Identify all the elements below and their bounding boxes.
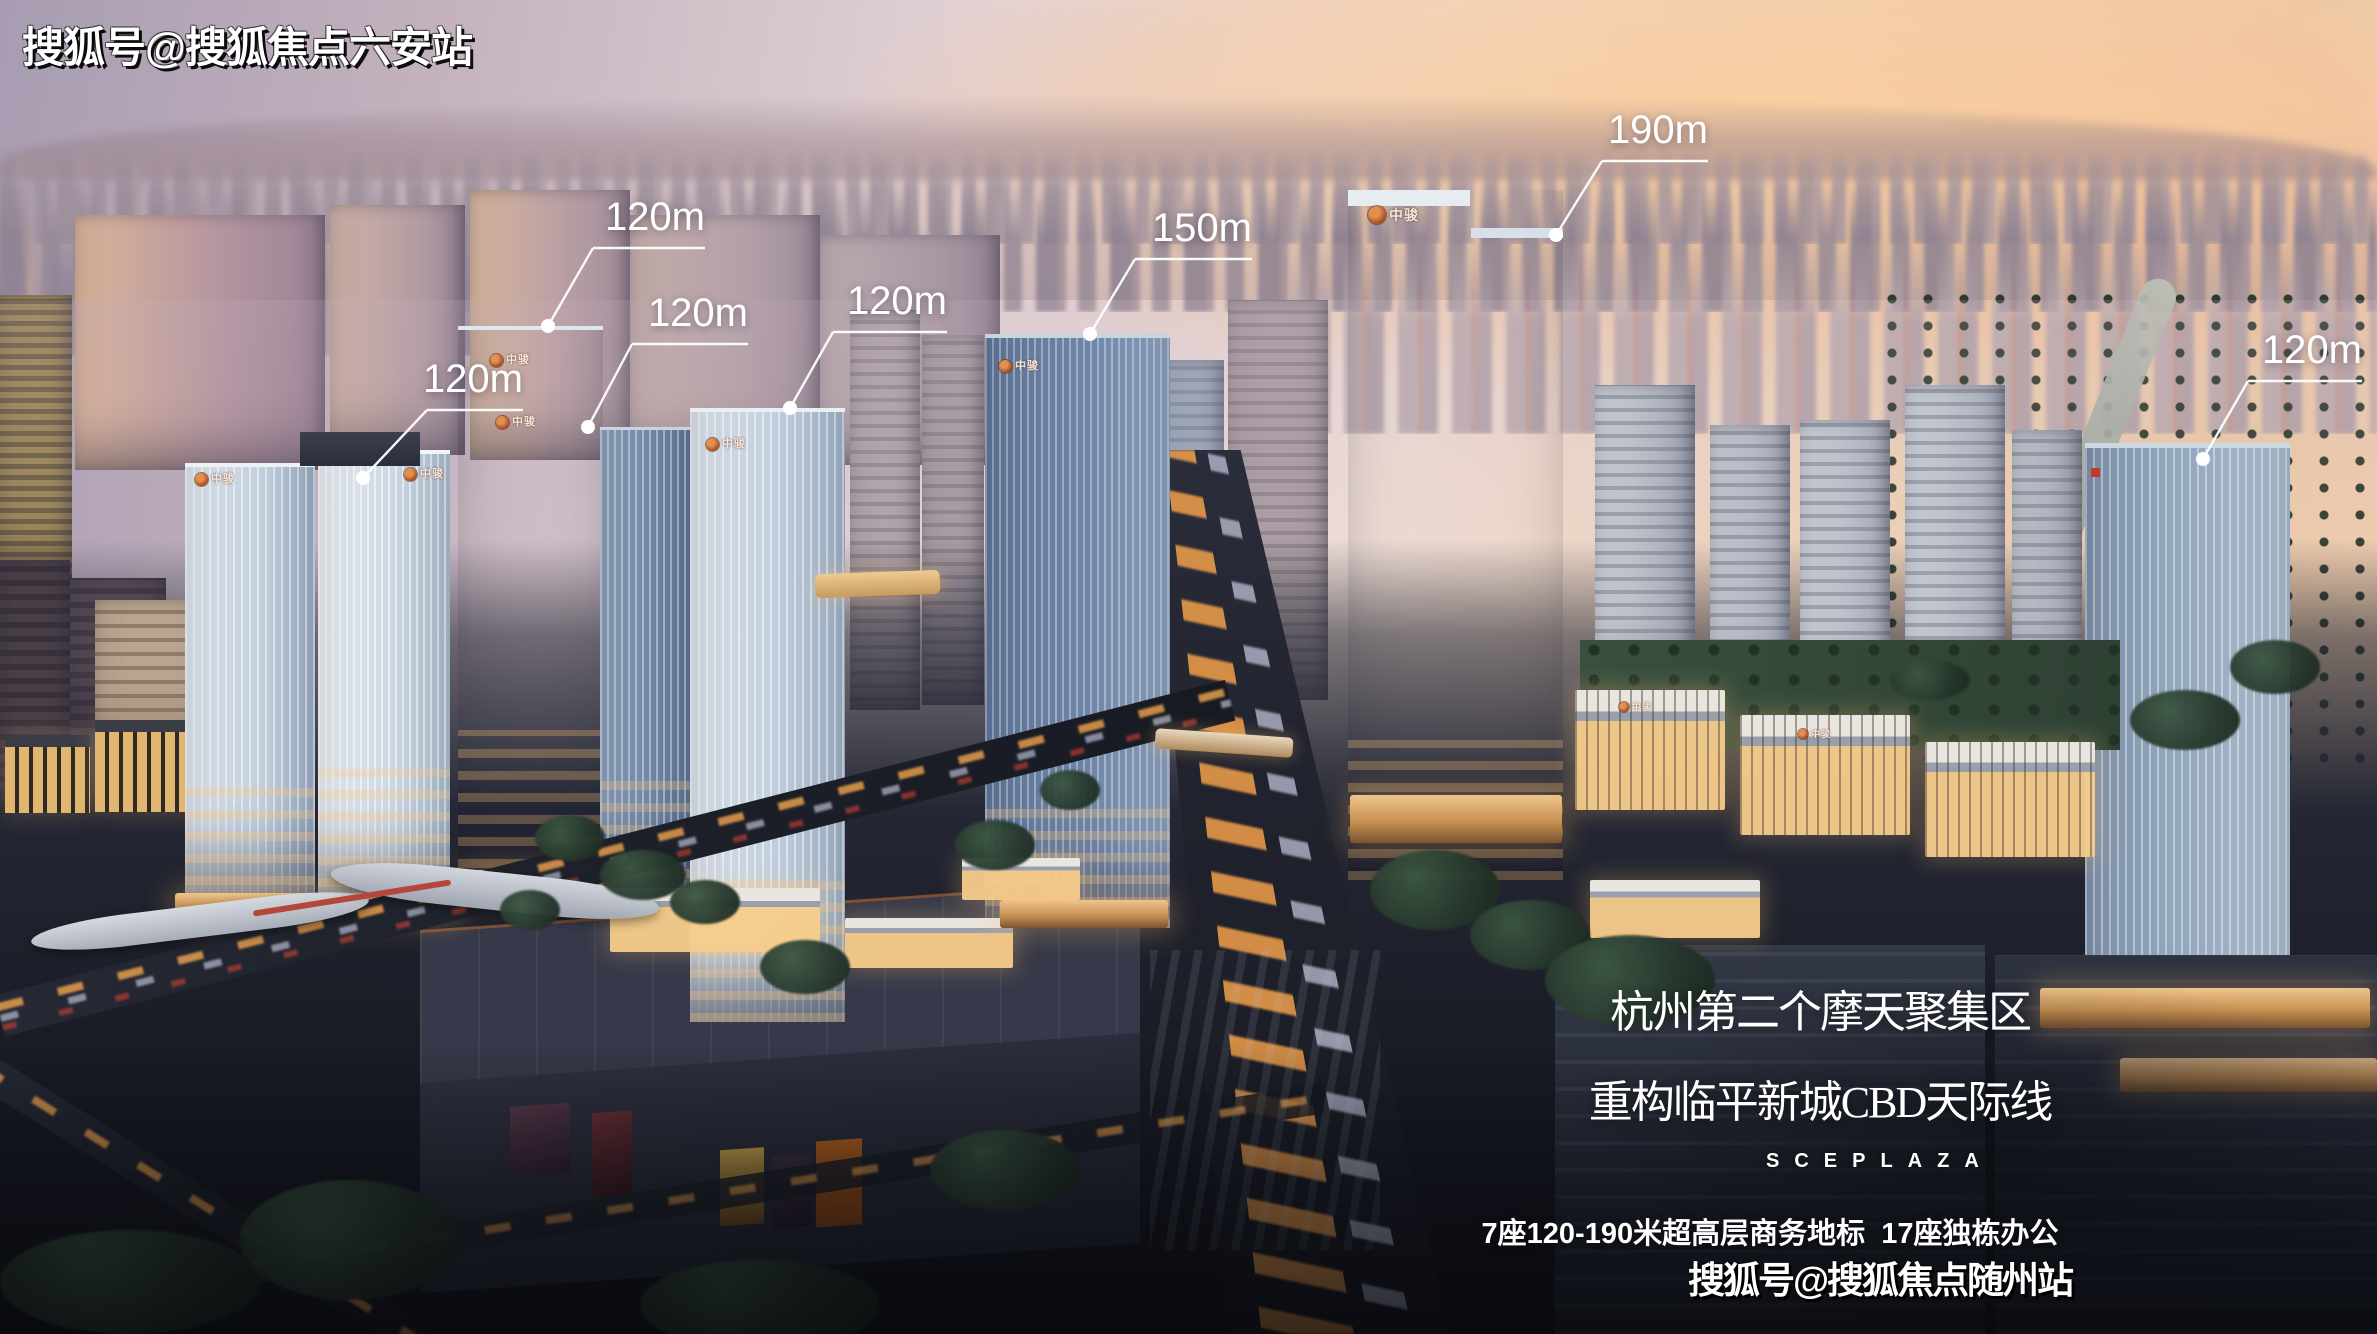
tree — [535, 815, 605, 861]
gear-icon — [999, 360, 1012, 373]
plaza-retail — [845, 918, 1013, 968]
gear-icon — [195, 473, 208, 486]
tower-120m-a: 中骏 — [185, 463, 315, 907]
podium-glow — [1000, 900, 1168, 928]
developer-logo-text: 中骏 — [211, 474, 235, 485]
tree — [1040, 770, 1100, 810]
developer-logo-text: 中骏 — [1811, 730, 1831, 739]
tree — [670, 880, 740, 924]
tree — [2230, 640, 2320, 694]
headline-stats: 7座120-190米超高层商务地标 17座独栋办公 — [1450, 1210, 2090, 1252]
watermark-top-left: 搜狐号@搜狐焦点六安站 — [22, 14, 472, 75]
cityscape-render: 中骏 中骏 中骏 中骏 中骏 中骏 中骏 中骏 中骏 — [0, 0, 2377, 1334]
developer-logo: 中骏 — [999, 360, 1039, 373]
developer-logo: 中骏 — [496, 416, 536, 429]
mall-entrance-canopy — [1590, 880, 1760, 938]
gear-icon — [1798, 729, 1808, 739]
developer-logo: 中骏 — [404, 468, 444, 481]
retail-street-box: 中骏 — [1740, 715, 1910, 835]
developer-logo: 中骏 — [706, 438, 746, 451]
tower-right-tier — [1471, 228, 1563, 238]
developer-logo-text: 中骏 — [1015, 361, 1039, 372]
rooftop-mechanical — [300, 432, 420, 466]
headline-line2: 重构临平新城CBD天际线 — [1545, 1066, 2095, 1130]
height-label-120m: 120m — [423, 357, 523, 402]
headline-line1: 杭州第二个摩天聚集区 — [1560, 976, 2080, 1040]
tower-120m-1: 中骏 中骏 — [458, 326, 603, 890]
watermark-bottom-right: 搜狐号@搜狐焦点随州站 — [1555, 1250, 2205, 1304]
developer-logo-text: 中骏 — [1389, 208, 1419, 222]
tower-white-cap — [1348, 190, 1470, 206]
height-label-150m: 150m — [1152, 206, 1252, 251]
developer-logo-text: 中骏 — [420, 469, 444, 480]
developer-logo: 中骏 — [1798, 729, 1831, 739]
tree — [1890, 660, 1970, 700]
retail-street-box — [1925, 742, 2095, 857]
plaza-skybridge — [815, 570, 941, 598]
tower-120m-b: 中骏 — [318, 450, 450, 909]
gear-icon — [404, 468, 417, 481]
tree — [760, 940, 850, 994]
tree — [2130, 690, 2240, 750]
retail-street-box: 中骏 — [1575, 690, 1725, 810]
height-label-190m: 190m — [1608, 108, 1708, 153]
developer-logo-text: 中骏 — [1632, 703, 1652, 712]
developer-logo-text: 中骏 — [512, 417, 536, 428]
tower-lit-floors — [185, 777, 315, 907]
height-label-120m: 120m — [605, 195, 705, 240]
developer-logo: 中骏 — [1619, 702, 1652, 712]
gear-icon — [706, 438, 719, 451]
tree — [500, 890, 560, 930]
developer-logo-text: 中骏 — [722, 439, 746, 450]
tower-190m: 中骏 — [1348, 190, 1563, 880]
tower-red-logo — [2091, 468, 2100, 477]
gear-icon — [1368, 206, 1386, 224]
gear-icon — [1619, 702, 1629, 712]
height-label-120m: 120m — [2262, 328, 2362, 373]
height-label-120m: 120m — [847, 279, 947, 324]
gear-icon — [496, 416, 509, 429]
developer-logo: 中骏 — [195, 473, 235, 486]
lit-office-campus — [5, 735, 90, 813]
developer-logo: 中骏 — [1368, 206, 1419, 224]
project-name-en: SCEPLAZA — [1766, 1150, 1994, 1173]
podium-glow — [1350, 795, 1562, 843]
tree — [955, 820, 1035, 870]
height-label-120m: 120m — [648, 291, 748, 336]
